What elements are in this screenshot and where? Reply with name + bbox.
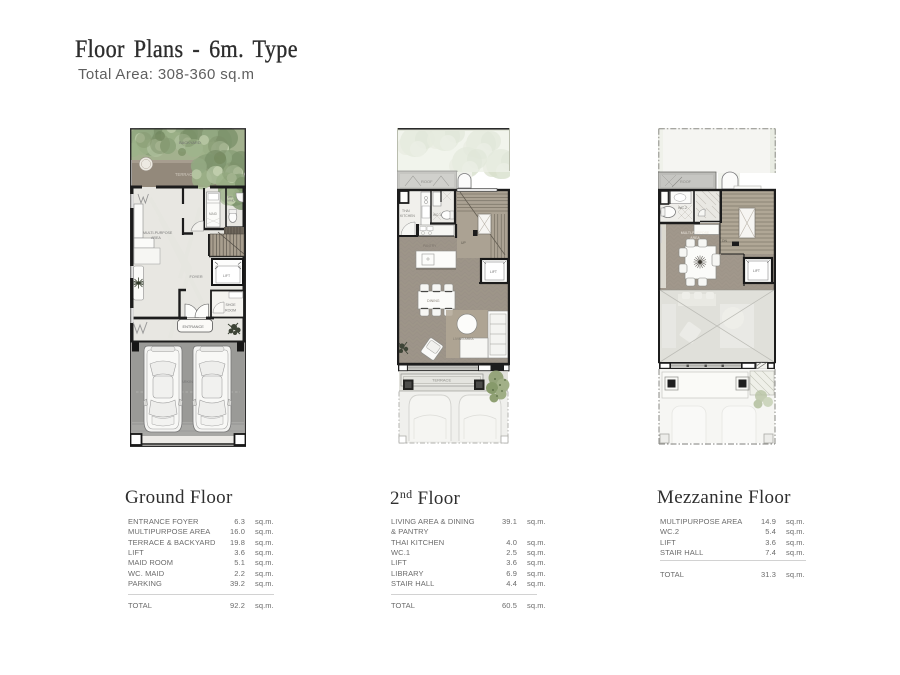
svg-text:BACKYARD: BACKYARD [179, 140, 201, 145]
svg-text:UP: UP [461, 241, 466, 245]
svg-text:DN: DN [722, 239, 727, 243]
svg-text:MAID: MAID [228, 199, 235, 203]
svg-text:LIVING AREA: LIVING AREA [453, 337, 474, 341]
svg-text:WC.1: WC.1 [433, 213, 441, 217]
svg-text:ROOF: ROOF [421, 179, 433, 184]
svg-text:MULTI-PURPOSE: MULTI-PURPOSE [681, 231, 710, 235]
svg-text:WC.2: WC.2 [678, 206, 687, 210]
svg-text:AREA: AREA [151, 236, 161, 240]
svg-text:LIFT: LIFT [223, 274, 231, 278]
svg-text:MULTI-PURPOSE: MULTI-PURPOSE [143, 231, 173, 235]
svg-text:DINING: DINING [427, 299, 440, 303]
svg-text:LIFT: LIFT [753, 269, 760, 273]
svg-text:SHOE: SHOE [226, 303, 237, 307]
svg-text:ENTRANCE: ENTRANCE [183, 324, 205, 329]
svg-text:MAID: MAID [209, 212, 218, 216]
svg-text:ROOF: ROOF [680, 180, 692, 184]
svg-text:THAI: THAI [402, 209, 410, 213]
svg-text:FOYER: FOYER [190, 275, 203, 279]
svg-text:TERRACE: TERRACE [432, 378, 451, 383]
svg-text:LIFT: LIFT [490, 270, 497, 274]
svg-text:ROOM: ROOM [225, 309, 236, 313]
svg-text:PANTRY: PANTRY [423, 244, 437, 248]
svg-text:KITCHEN: KITCHEN [400, 214, 415, 218]
